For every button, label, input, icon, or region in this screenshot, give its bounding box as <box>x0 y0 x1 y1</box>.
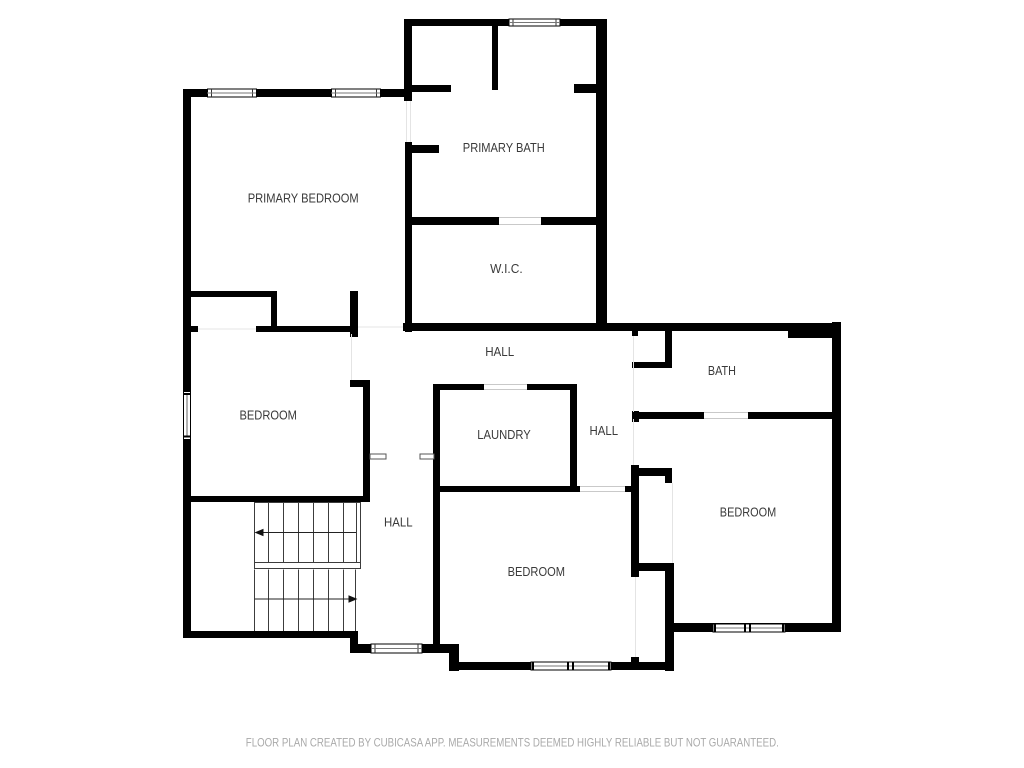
svg-text:BEDROOM: BEDROOM <box>720 504 776 519</box>
svg-text:PRIMARY BATH: PRIMARY BATH <box>463 140 545 155</box>
svg-text:BEDROOM: BEDROOM <box>239 408 297 423</box>
svg-text:BATH: BATH <box>708 363 736 378</box>
svg-text:BEDROOM: BEDROOM <box>508 564 565 579</box>
svg-text:HALL: HALL <box>384 515 413 530</box>
svg-text:PRIMARY BEDROOM: PRIMARY BEDROOM <box>248 191 359 206</box>
svg-text:HALL: HALL <box>590 423 619 438</box>
svg-text:LAUNDRY: LAUNDRY <box>477 427 531 442</box>
svg-text:FLOOR PLAN CREATED BY CUBICASA: FLOOR PLAN CREATED BY CUBICASA APP. MEAS… <box>246 735 779 749</box>
svg-text:W.I.C.: W.I.C. <box>490 261 523 276</box>
svg-text:HALL: HALL <box>485 344 514 359</box>
